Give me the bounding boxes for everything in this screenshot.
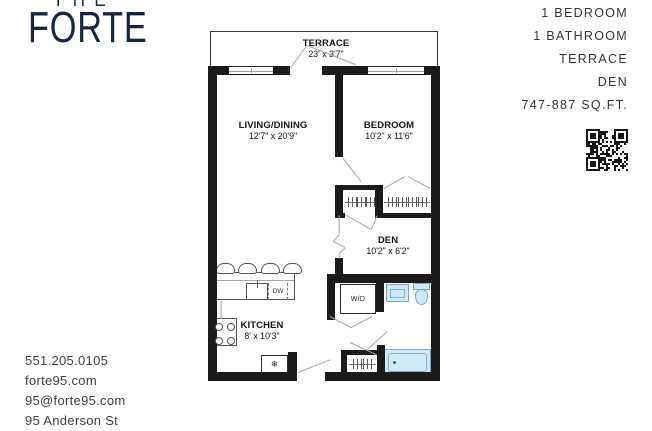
den-name: DEN bbox=[333, 236, 443, 246]
bar-stool bbox=[216, 263, 235, 274]
hanger-symbol bbox=[388, 197, 397, 207]
bar-stool bbox=[238, 263, 257, 274]
bedroom-name: BEDROOM bbox=[334, 121, 444, 131]
bar-stool bbox=[261, 263, 280, 274]
logo-forte-text: FORTE bbox=[28, 8, 148, 48]
door-swing-line bbox=[220, 301, 221, 319]
door-swing-line bbox=[338, 254, 339, 259]
terrace-name: TERRACE bbox=[271, 39, 381, 49]
washer-dryer-label: W/D bbox=[351, 296, 366, 303]
sink-bowl bbox=[390, 289, 405, 298]
kitchen-sink bbox=[246, 283, 268, 300]
wall-segment bbox=[273, 66, 290, 75]
bar-stool bbox=[283, 263, 302, 274]
hanger-symbol bbox=[363, 359, 372, 369]
summary-sqft: 747-887 SQ.FT. bbox=[522, 99, 628, 113]
floorplan-flyer-page: { "logo": { "line1": "THE", "line2": "FO… bbox=[0, 0, 652, 416]
wall-segment bbox=[327, 274, 440, 283]
door-swing-line bbox=[338, 216, 339, 235]
wall-segment bbox=[431, 66, 440, 381]
wall-segment bbox=[208, 372, 297, 381]
room-label-living-dining: LIVING/DINING 12'7" x 20'9" bbox=[218, 121, 328, 141]
door-swing-line bbox=[345, 214, 372, 230]
door-swing-line bbox=[408, 176, 431, 189]
toilet bbox=[415, 289, 428, 305]
living-dining-dims: 12'7" x 20'9" bbox=[218, 131, 328, 141]
contact-website: forte95.com bbox=[25, 371, 126, 391]
hanger-symbol bbox=[366, 197, 375, 207]
window bbox=[368, 66, 424, 75]
stove-burner bbox=[227, 323, 235, 331]
door-swing-line bbox=[384, 176, 406, 189]
summary-terrace: TERRACE bbox=[522, 53, 628, 67]
wall-segment bbox=[376, 283, 384, 312]
wall-segment bbox=[208, 66, 217, 381]
bedroom-dims: 10'2" x 11'6" bbox=[334, 131, 444, 141]
wall-segment bbox=[377, 345, 385, 372]
stove-burner bbox=[215, 323, 223, 331]
stove-burner bbox=[215, 337, 223, 345]
washer-dryer: W/D bbox=[340, 284, 376, 314]
bathroom-sink bbox=[386, 284, 409, 302]
window bbox=[229, 66, 273, 75]
summary-bathrooms: 1 BATHROOM bbox=[522, 30, 628, 44]
contact-email: 95@forte95.com bbox=[25, 391, 126, 411]
hanger-symbol bbox=[353, 359, 362, 369]
wall-segment bbox=[335, 213, 345, 218]
hanger-symbol bbox=[408, 197, 417, 207]
stove-burner bbox=[227, 337, 235, 345]
refrigerator: ❄ bbox=[261, 355, 288, 373]
door-swing-line bbox=[370, 215, 377, 229]
wall-segment bbox=[335, 66, 343, 157]
contact-address: 95 Anderson St bbox=[25, 411, 126, 431]
wall-segment bbox=[375, 213, 431, 218]
unit-summary: 1 BEDROOM 1 BATHROOM TERRACE DEN 747-887… bbox=[522, 7, 628, 122]
room-label-bedroom: BEDROOM 10'2" x 11'6" bbox=[334, 121, 444, 141]
summary-den: DEN bbox=[522, 76, 628, 90]
wall-segment bbox=[322, 66, 368, 75]
wall-segment bbox=[341, 350, 347, 377]
qr-code bbox=[586, 129, 628, 171]
counter-edge-line bbox=[211, 280, 294, 281]
room-label-terrace: TERRACE 23' x 3'7" bbox=[271, 39, 381, 59]
snowflake-icon: ❄ bbox=[271, 359, 279, 370]
wall-segment bbox=[288, 352, 297, 372]
den-dims: 10'2" x 6'2" bbox=[333, 246, 443, 256]
hanger-symbol bbox=[418, 197, 427, 207]
room-label-den: DEN 10'2" x 6'2" bbox=[333, 236, 443, 256]
door-swing-line bbox=[342, 158, 361, 182]
dishwasher-label: DW bbox=[273, 288, 284, 295]
forte-logo: THE FORTE bbox=[28, 0, 181, 48]
hanger-symbol bbox=[348, 197, 357, 207]
contact-block: 551.205.0105 forte95.com 95@forte95.com … bbox=[25, 351, 126, 431]
wall-segment bbox=[327, 274, 335, 320]
contact-phone: 551.205.0105 bbox=[25, 351, 126, 371]
living-dining-name: LIVING/DINING bbox=[218, 121, 328, 131]
hanger-symbol bbox=[357, 197, 366, 207]
dishwasher: DW bbox=[268, 283, 288, 300]
tub-drain bbox=[393, 361, 396, 364]
summary-bedrooms: 1 BEDROOM bbox=[522, 7, 628, 21]
door-swing-line bbox=[351, 316, 373, 328]
wall-segment bbox=[335, 258, 343, 275]
door-swing-line bbox=[330, 316, 352, 328]
hanger-symbol bbox=[398, 197, 407, 207]
